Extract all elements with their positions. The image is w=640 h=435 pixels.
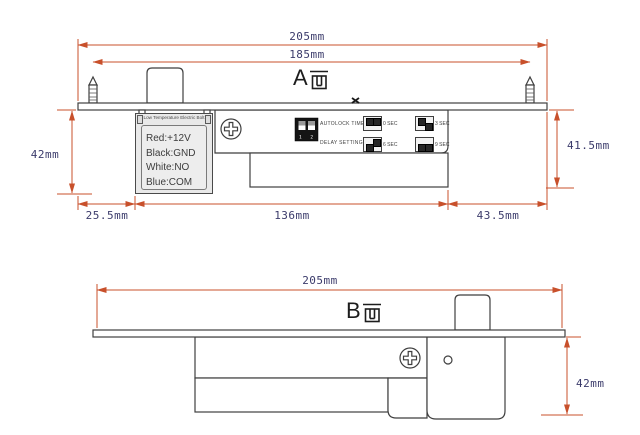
wiring-label-box: Low Temperature Electric Bolt Red:+12V B… [135, 113, 213, 194]
view-b-letter: B [346, 301, 361, 321]
dim-a-offset-right: 43.5mm [465, 209, 531, 222]
view-b-upper-body [195, 337, 427, 378]
mian-character-glyph-b [362, 302, 382, 323]
wire-black: Black:GND [146, 147, 206, 162]
view-b-body [93, 295, 565, 419]
dim-a-body: 136mm [262, 209, 322, 222]
view-a-lower-body [250, 153, 448, 187]
dip-switch-numbers: 1 2 [299, 135, 316, 141]
dip-setting-0sec-icon: 0 SEC [363, 116, 382, 131]
dim-a-height-right: 41.5mm [567, 139, 637, 152]
view-a-label: A [293, 68, 329, 90]
view-a-switch-panel [215, 110, 448, 153]
view-b-bolt [455, 295, 490, 330]
dim-b-total: 205mm [285, 274, 355, 287]
dip-setting-6sec-icon: 6 SEC [363, 137, 382, 152]
dip-switch-block: 1 2 [295, 118, 318, 141]
dip-setting-9sec-label: 9 SEC [435, 142, 449, 148]
view-b-lower-body [195, 378, 388, 412]
center-mark-icon [352, 98, 359, 103]
mian-character-glyph [309, 69, 329, 90]
view-a-screw-right [526, 77, 534, 103]
dim-a-offset-left: 25.5mm [74, 209, 140, 222]
dip-setting-9sec-icon: 9 SEC [415, 137, 434, 152]
dim-b-height: 42mm [576, 377, 631, 390]
dip-setting-0sec-label: 0 SEC [383, 121, 397, 127]
dip-setting-3sec-icon: 3 SEC [415, 116, 434, 131]
autolock-time-label: AUTOLOCK TIME [320, 121, 365, 127]
view-a-bolt [147, 68, 183, 103]
view-a-faceplate [78, 103, 547, 110]
dip-setting-3sec-label: 3 SEC [435, 121, 449, 127]
dim-a-total: 205mm [262, 30, 352, 43]
view-b-faceplate [93, 330, 565, 337]
view-b-right-section [427, 337, 505, 419]
wire-blue: Blue:COM [146, 176, 206, 191]
dim-a-screw-spacing: 185mm [262, 48, 352, 61]
label-box-header: Low Temperature Electric Bolt [139, 115, 209, 120]
drawing-canvas: 1 2 [0, 0, 640, 435]
dip-setting-6sec-label: 6 SEC [383, 142, 397, 148]
delay-setting-label: DELAY SETTING [320, 140, 363, 146]
view-a-screw-left [89, 77, 97, 103]
wire-white: White:NO [146, 161, 206, 176]
view-a-letter: A [293, 68, 308, 88]
view-b-step [388, 378, 427, 418]
dim-a-height-left: 42mm [20, 148, 70, 161]
wire-red: Red:+12V [146, 132, 206, 147]
view-b-label: B [346, 301, 382, 323]
label-box-inner: Red:+12V Black:GND White:NO Blue:COM [141, 125, 207, 190]
